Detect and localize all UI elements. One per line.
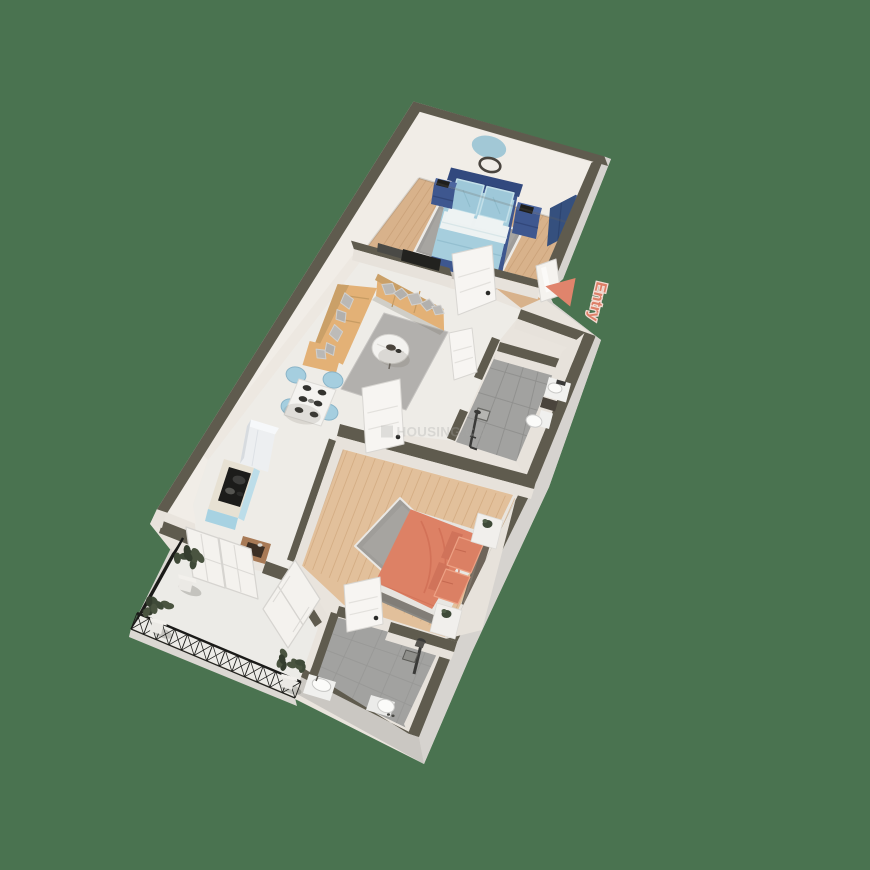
svg-text:HOUSING.CO: HOUSING.CO — [397, 425, 486, 440]
